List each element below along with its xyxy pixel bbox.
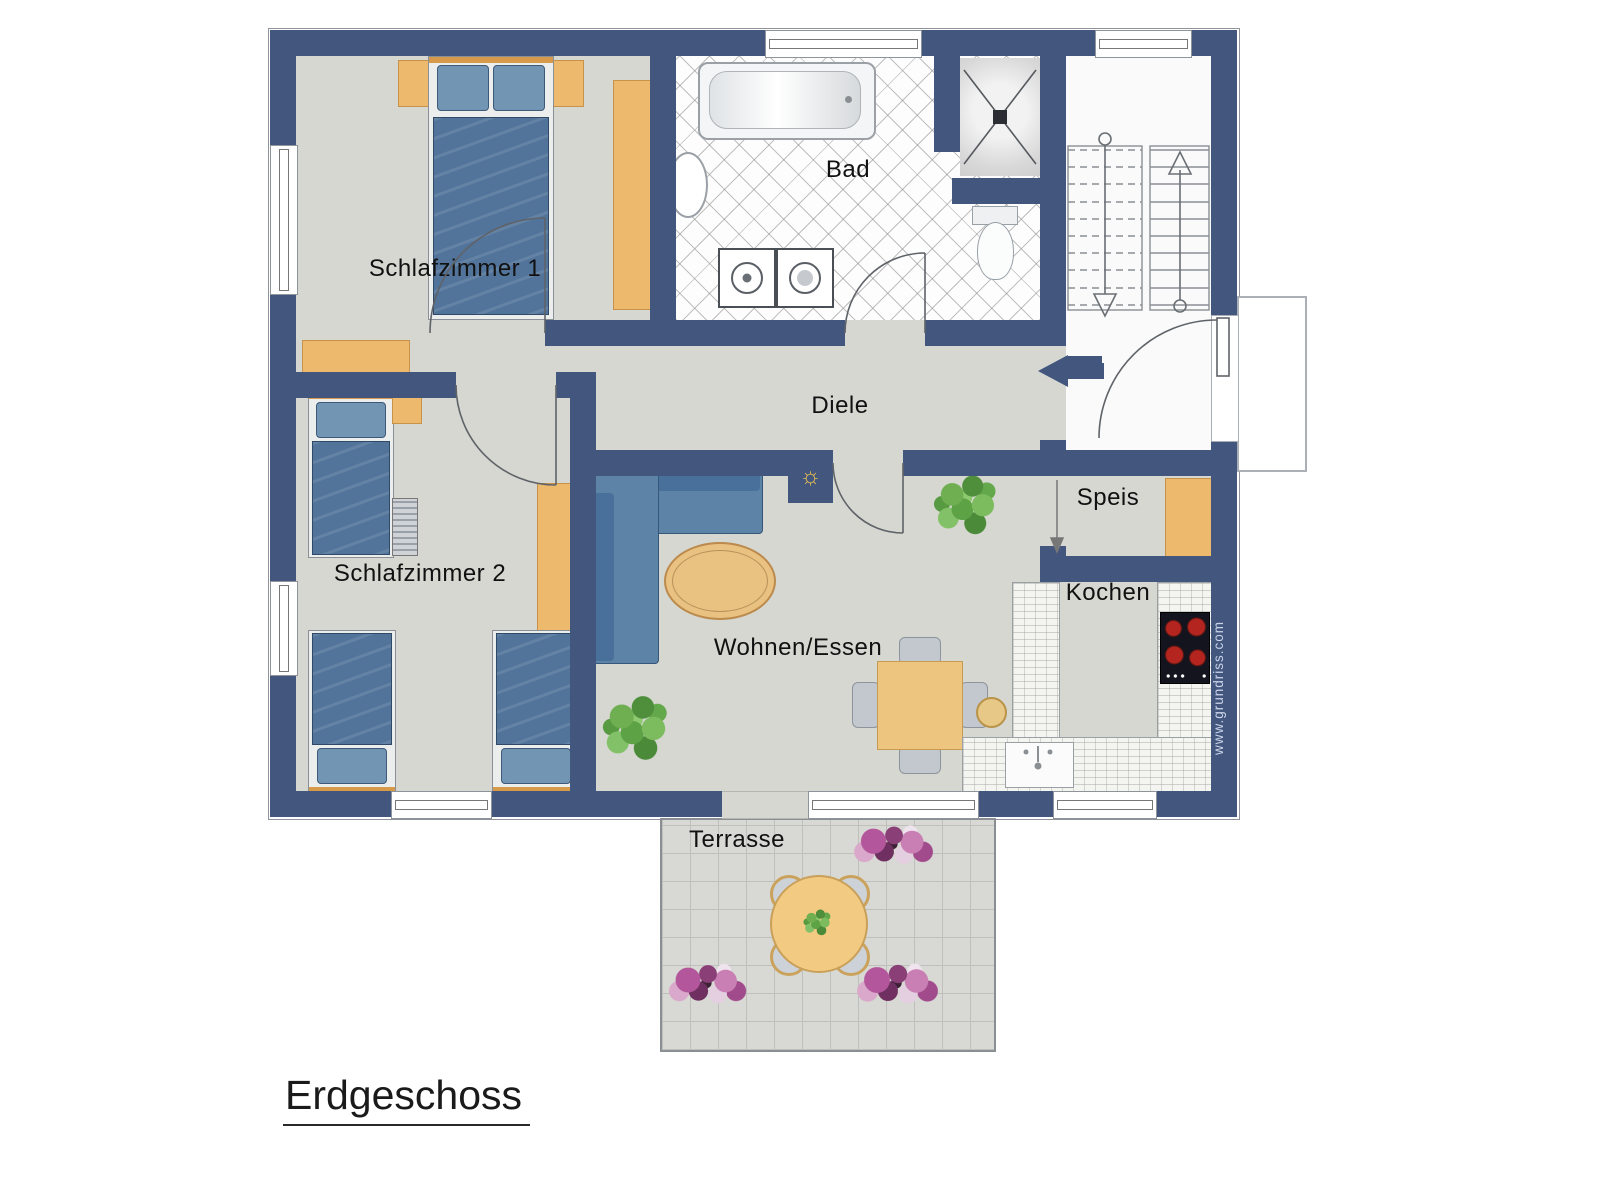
room-label-wohnen-essen: Wohnen/Essen [714,634,882,662]
window-stairs [1095,30,1192,58]
kitchen-counter-bottom [962,737,1213,793]
wall-left-1 [270,30,296,145]
single-bed-1 [308,393,394,558]
wall-bottom-3 [977,791,1053,817]
single-bed-3 [492,630,580,793]
wardrobe-bedroom1 [613,80,652,310]
toilet-bowl [977,222,1014,280]
wall-left-2 [270,293,296,581]
window-kitchen [1053,791,1157,819]
flower-bed-ne [853,822,935,870]
dining-chair-bottom [899,746,941,774]
washing-machine [718,248,776,308]
pillow [316,402,386,438]
room-label-kochen: Kochen [1066,579,1150,607]
window-pane [812,800,975,810]
wall-hall-top-2 [925,320,1066,346]
plant-living [602,692,668,762]
single-bed-2 [308,630,396,793]
wall-top-1 [270,30,765,56]
wall-bottom-2 [490,791,722,817]
counter-bowl [976,697,1007,728]
sofa-vertical [591,468,659,664]
sofa-backrest [594,493,614,661]
wall-entry-pantry [1040,450,1237,476]
window-living [808,791,979,819]
desk-bedroom1 [302,340,410,374]
bed-blanket [312,441,390,555]
nightstand-right [552,60,584,107]
wall-bedroom2-top-2 [556,372,596,398]
room-label-schlafzimmer1: Schlafzimmer 1 [369,255,541,283]
wall-bottom-1 [270,791,391,817]
wall-hall-top-1 [545,320,845,346]
window-pane [1099,39,1188,49]
room-label-bad: Bad [826,156,870,184]
window-bedroom1 [270,145,298,295]
terrace-door-opening [722,791,808,819]
wall-bedroom2-top-1 [296,372,456,398]
pillow [317,748,387,784]
room-label-diele: Diele [811,392,868,420]
floor-plan-canvas: ☼ [0,0,1600,1200]
window-pane [395,800,488,810]
dining-table [877,661,963,750]
terrace-table-plant [803,908,831,936]
stove-cooktop [1160,612,1210,684]
window-bedroom2-south [391,791,492,819]
bed-headboard [429,57,553,63]
window-bath [765,30,922,58]
wall-hall-bottom-2 [903,450,1040,476]
floor-stair-hall [1066,56,1211,450]
nightstand-left [398,60,430,107]
wall-right-1 [1211,30,1237,315]
shower-tray [960,58,1040,176]
plant-hall-door [933,472,997,536]
pantry-shelf [1165,478,1213,558]
bedside-desk [392,396,422,424]
bathtub-basin [709,71,861,129]
kitchen-counter-left [1012,582,1060,739]
ceiling-light-icon: ☼ [800,465,822,489]
dryer [776,248,834,308]
wardrobe-bedroom2 [537,483,572,635]
window-pane [279,149,289,291]
room-label-schlafzimmer2: Schlafzimmer 2 [334,560,506,588]
page-title: Erdgeschoss [283,1072,530,1126]
coffee-table [664,542,776,620]
room-label-terrasse: Terrasse [689,826,785,854]
bed-blanket [312,633,392,745]
wall-top-2 [920,30,1095,56]
pillow [437,65,489,111]
window-pane [1057,800,1153,810]
wall-shower-vertical [934,56,960,152]
watermark-text: www.grundriss.com [1211,560,1237,816]
front-door-opening [1211,315,1239,442]
wall-bedroom2-living [570,398,596,791]
window-bedroom2 [270,581,298,676]
bathtub-drain [845,96,852,103]
flower-bed-se [856,960,940,1010]
pillow [493,65,545,111]
pillow [501,748,571,784]
wall-shower-horizontal [952,178,1066,204]
bathtub [698,62,876,140]
bed-blanket [433,117,549,315]
room-label-speis: Speis [1077,484,1140,512]
window-pane [279,585,289,672]
wall-hall-bottom-1 [596,450,788,476]
dining-chair-left [852,682,880,728]
entrance-porch [1237,296,1307,472]
wall-bedroom1-bath [650,56,676,320]
shelf-radiator [392,498,418,556]
bed-blanket [496,633,576,745]
kitchen-sink [1005,742,1074,788]
flower-bed-sw [668,960,748,1010]
window-pane [769,39,918,49]
ceiling-light: ☼ [788,450,833,503]
